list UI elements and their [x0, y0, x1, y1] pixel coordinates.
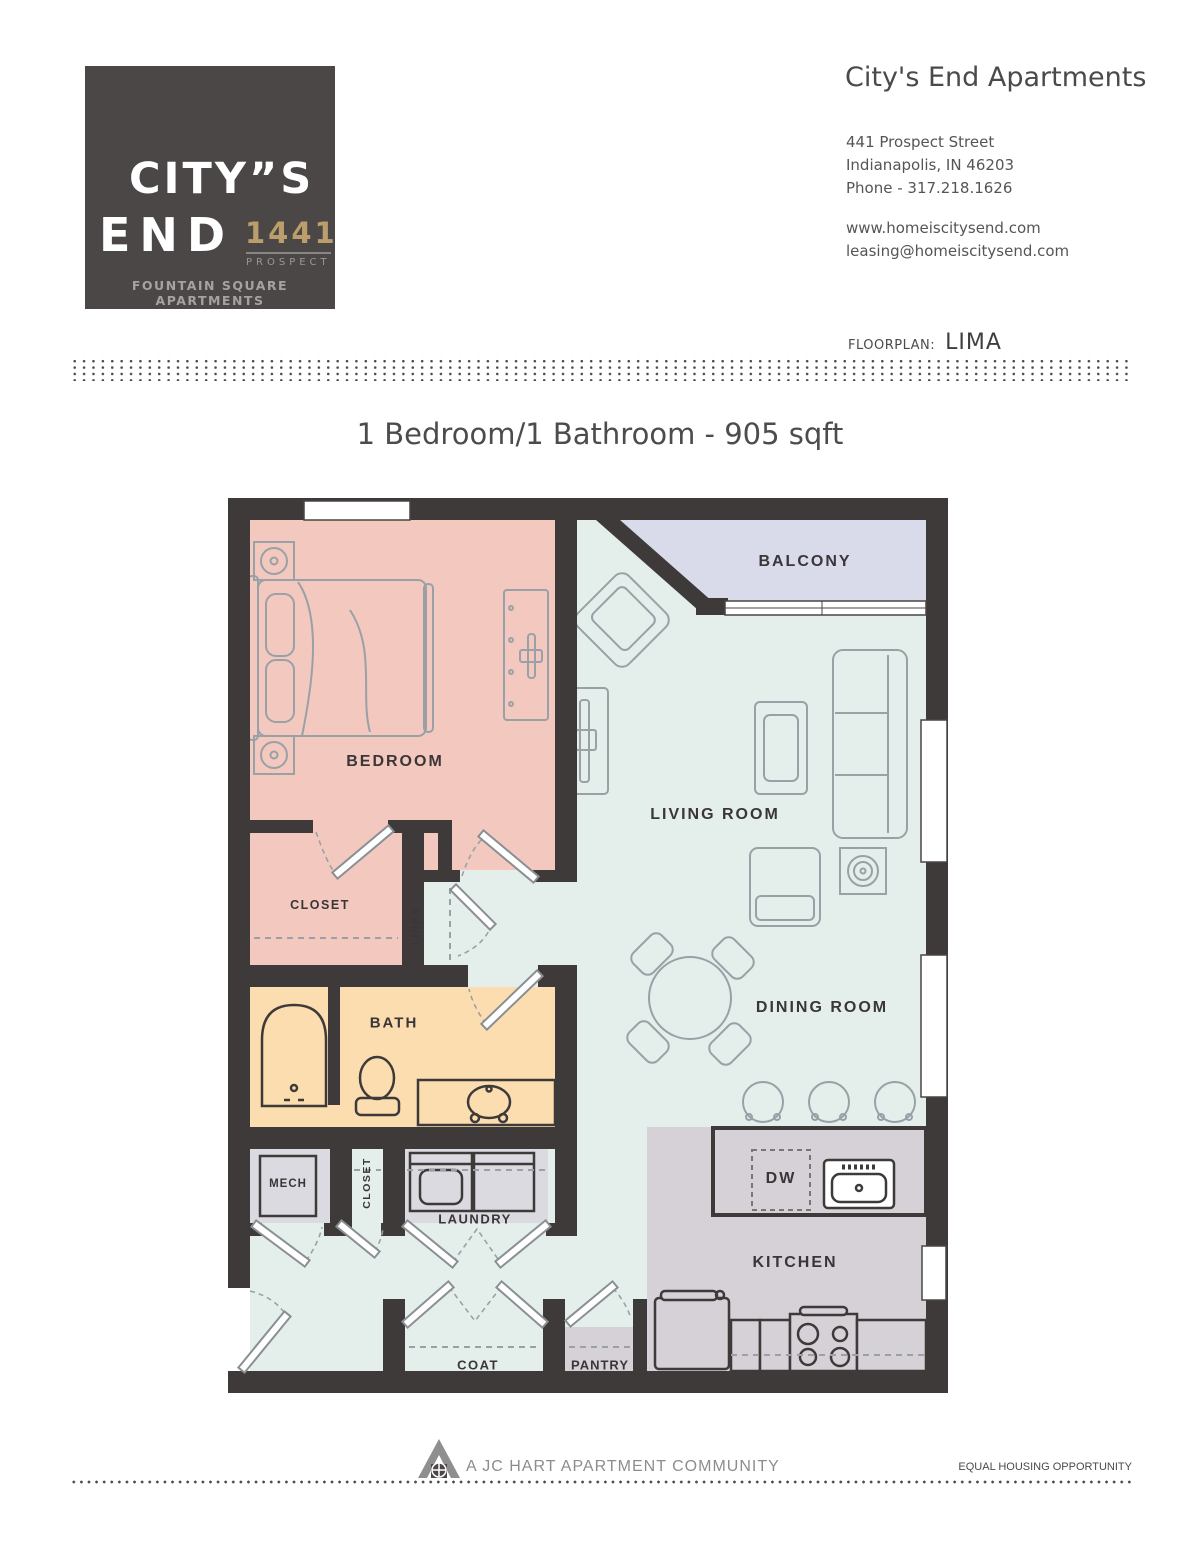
phone-number: Phone - 317.218.1626: [846, 177, 1069, 200]
logo-citys-text: CITY”S: [129, 154, 314, 204]
room-fills: [250, 520, 926, 1371]
logo-1441-text: 1441: [245, 216, 338, 250]
dotted-divider-bottom: [70, 1478, 1132, 1484]
room-label-closet: CLOSET: [290, 898, 350, 912]
page-title: City's End Apartments: [845, 62, 1146, 93]
floorplan-row: FLOORPLAN: LIMA: [848, 330, 1002, 355]
room-label-coat: COAT: [457, 1358, 499, 1373]
logo-end-text: END: [99, 208, 234, 262]
floor-plan: BALCONY BEDROOM LIVING ROOM DINING ROOM …: [228, 498, 948, 1395]
room-label-mech: MECH: [269, 1178, 307, 1190]
floor-plan-drawing: [228, 498, 948, 1395]
room-label-kitchen: KITCHEN: [752, 1254, 837, 1272]
contact-info: 441 Prospect Street Indianapolis, IN 462…: [846, 131, 1069, 263]
brand-logo: CITY”S END 1441 PROSPECT FOUNTAIN SQUARE…: [85, 66, 335, 309]
room-label-hall-closet: CLOSET: [361, 1157, 373, 1209]
room-label-dishwasher: DW: [766, 1170, 797, 1188]
email-link[interactable]: leasing@homeiscitysend.com: [846, 240, 1069, 263]
room-label-balcony: BALCONY: [758, 553, 851, 571]
room-label-pantry: PANTRY: [571, 1358, 629, 1373]
address-line1: 441 Prospect Street: [846, 131, 1069, 154]
floorplan-name: LIMA: [945, 330, 1002, 355]
room-label-linen: LINEN: [410, 907, 422, 946]
website-link[interactable]: www.homeiscitysend.com: [846, 217, 1069, 240]
logo-tagline: FOUNTAIN SQUARE APARTMENTS: [85, 278, 335, 308]
room-label-living-room: LIVING ROOM: [650, 806, 780, 824]
room-label-dining-room: DINING ROOM: [756, 999, 888, 1017]
room-label-laundry: LAUNDRY: [438, 1212, 512, 1227]
floorplan-label: FLOORPLAN:: [848, 338, 935, 353]
dotted-divider-top: [70, 356, 1132, 381]
equal-housing-text: EQUAL HOUSING OPPORTUNITY: [900, 1461, 1132, 1473]
room-label-bedroom: BEDROOM: [346, 753, 444, 771]
logo-prospect-text: PROSPECT: [246, 252, 331, 268]
address-line2: Indianapolis, IN 46203: [846, 154, 1069, 177]
community-credit: A JC HART APARTMENT COMMUNITY: [466, 1458, 780, 1476]
room-label-bath: BATH: [370, 1015, 419, 1032]
unit-headline: 1 Bedroom/1 Bathroom - 905 sqft: [0, 417, 1200, 451]
